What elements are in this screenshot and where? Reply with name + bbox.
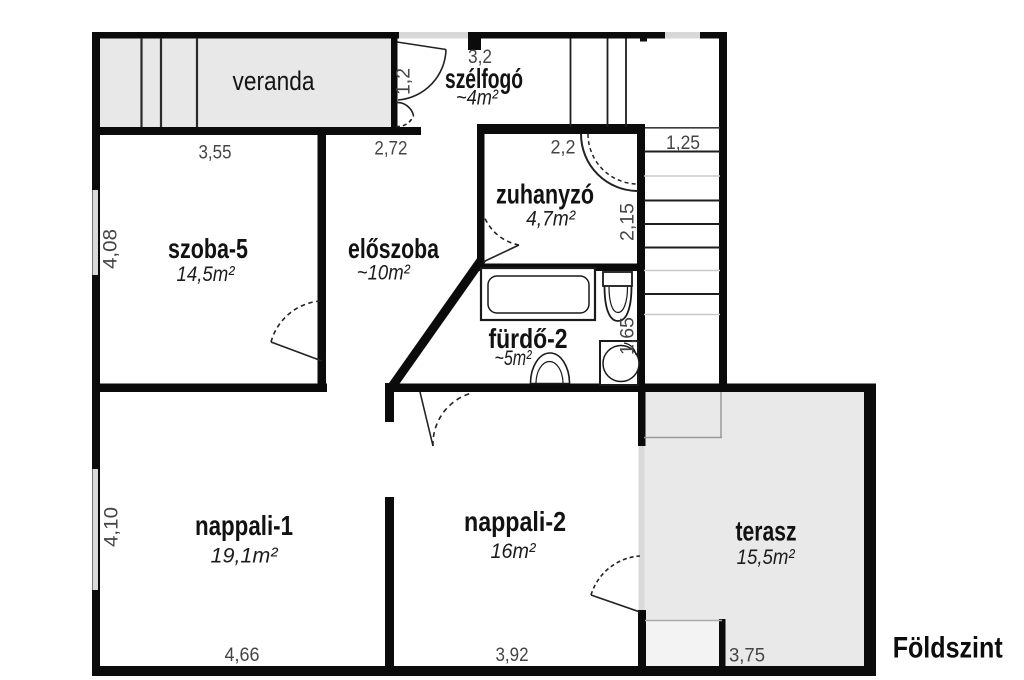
svg-text:1,65: 1,65 (617, 317, 639, 355)
svg-text:3,55: 3,55 (199, 142, 232, 164)
svg-text:~10m²: ~10m² (357, 262, 411, 285)
svg-text:szoba-5: szoba-5 (168, 233, 248, 264)
svg-text:zuhanyzó: zuhanyzó (496, 179, 594, 210)
svg-text:Földszint: Földszint (893, 632, 1003, 665)
svg-text:veranda: veranda (233, 66, 316, 96)
svg-text:14,5m²: 14,5m² (177, 263, 236, 286)
svg-text:nappali-1: nappali-1 (195, 510, 293, 541)
svg-text:~4m²: ~4m² (456, 87, 499, 110)
svg-text:16m²: 16m² (491, 540, 537, 563)
svg-text:3,75: 3,75 (729, 645, 765, 667)
svg-text:2,15: 2,15 (617, 203, 639, 241)
svg-text:4,10: 4,10 (101, 507, 123, 547)
svg-text:~5m²: ~5m² (495, 347, 533, 370)
svg-text:előszoba: előszoba (348, 233, 439, 264)
svg-text:1,25: 1,25 (666, 132, 700, 154)
svg-text:1,2: 1,2 (393, 68, 415, 95)
svg-text:4,08: 4,08 (100, 229, 122, 269)
svg-text:2,72: 2,72 (374, 138, 407, 160)
svg-text:4,7m²: 4,7m² (526, 208, 576, 231)
svg-text:2,2: 2,2 (551, 137, 576, 159)
svg-text:4,66: 4,66 (225, 644, 260, 666)
svg-text:3,2: 3,2 (468, 46, 492, 68)
svg-text:19,1m²: 19,1m² (211, 544, 279, 567)
svg-text:3,92: 3,92 (496, 644, 529, 666)
svg-text:terasz: terasz (736, 515, 797, 546)
svg-text:15,5m²: 15,5m² (737, 546, 796, 569)
svg-text:nappali-2: nappali-2 (464, 506, 566, 537)
